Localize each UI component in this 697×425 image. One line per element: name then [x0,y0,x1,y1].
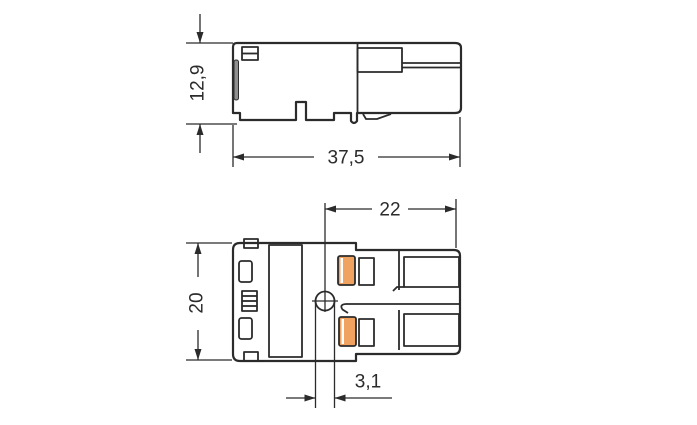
pole-2 [339,304,460,350]
dimension-label-side-height: 12,9 [188,65,209,102]
arrowhead-down [195,349,202,360]
front-view-latch-bottom [244,352,258,361]
side-view-dimensions: 12,9 37,5 [186,14,460,169]
front-view-marking-field [269,245,302,357]
side-view-inner-box [358,48,403,72]
arrowhead-up [197,124,204,135]
front-view-side-hole-top [239,261,252,282]
test-slot-top [359,258,374,285]
drawing-canvas: 12,9 37,5 [0,0,697,425]
side-view-outline [233,43,461,123]
wire-channel-top [404,257,459,287]
test-slot-bottom [359,319,374,346]
arrowhead-left [335,395,346,402]
side-view-gray-strip [234,60,239,100]
dimension-label-front-depth: 22 [379,200,400,221]
dimension-label-side-length: 37,5 [328,148,365,169]
arrowhead-down [197,32,204,43]
lever-stripe-top [341,258,344,283]
front-view-side-hole-bottom [239,318,252,339]
lever-stripe-bottom [342,319,345,344]
arrowhead-right [305,395,316,402]
dimension-side-height: 12,9 [186,14,237,153]
arrowhead-right [449,154,460,161]
arrowhead-right [445,206,456,213]
arrowhead-left [233,154,244,161]
contact-barb-line [341,304,460,313]
wire-channel-bottom [404,314,459,346]
technical-drawing: 12,9 37,5 [0,0,697,425]
pole-1 [338,250,459,291]
front-view-hatch-block [242,291,257,311]
dimension-label-hole: 3,1 [355,372,381,393]
dimension-front-height: 20 [186,243,232,360]
side-view [233,43,461,123]
side-view-latch-tooth [363,114,391,119]
arrowhead-up [195,243,202,254]
front-view [233,239,460,361]
dimension-label-front-height: 20 [187,292,208,313]
arrowhead-left [325,206,336,213]
dimension-side-length: 37,5 [233,117,460,169]
